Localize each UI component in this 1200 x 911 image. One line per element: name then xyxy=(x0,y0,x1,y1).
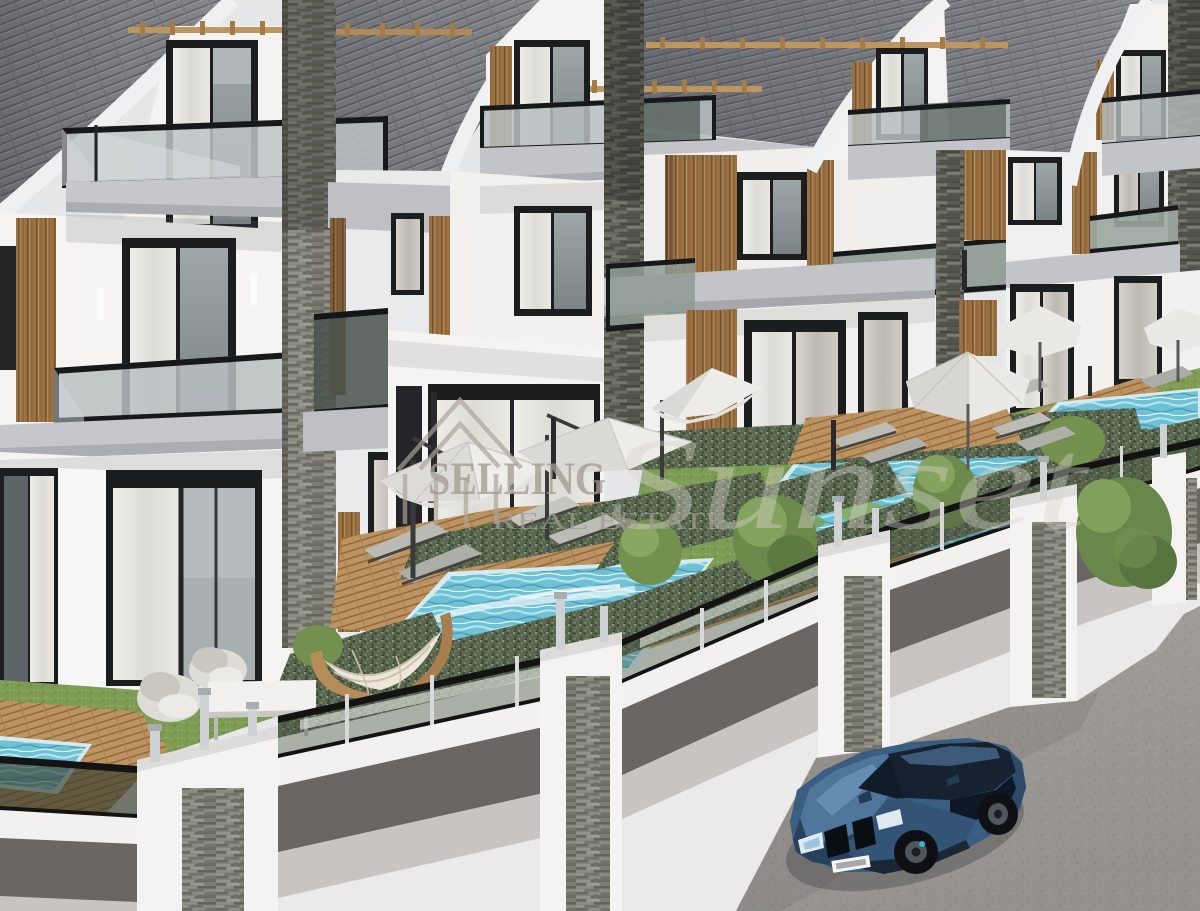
svg-text:SELLING: SELLING xyxy=(428,453,606,505)
svg-text:REAL ESTATE: REAL ESTATE xyxy=(492,509,728,535)
